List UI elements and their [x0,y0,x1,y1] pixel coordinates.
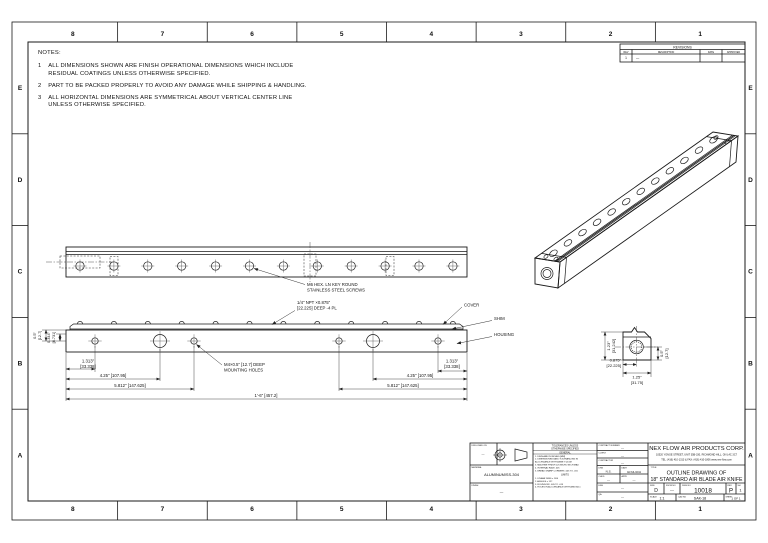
note-number: 1 [38,63,41,78]
shim-leader [452,321,492,330]
zone-row-label: E [18,85,23,92]
iso-end-face [535,258,560,288]
zone-column-label: 1 [698,31,702,38]
screw-hole [578,228,588,237]
screws-callout-line1: M6 HEX. LN KEY ROUND [307,282,358,287]
iso-top-face [535,132,738,262]
size-label: SIZE [650,485,655,487]
top-view: M6 HEX. LN KEY ROUND STAINLESS STEEL SCR… [46,242,467,293]
screw-head [315,321,320,324]
rev-col-date: DATE [708,51,715,54]
rev-col-approved: APPROVED [727,51,741,54]
iso-front-face [558,136,738,288]
screw-hole [694,146,704,155]
drawing-title-line1: OUTLINE DRAWING OF [667,471,727,477]
screw-hole [548,249,558,258]
title-label: TITLE [651,467,657,469]
screw-hole [679,156,689,165]
eng-value: — [621,487,624,491]
rev-value: P [729,489,733,495]
rev-col-rev: REV [624,51,629,54]
tolerance-line: 4. HOLES IN ACCORDANCE WITH ANSI B4.1 [535,486,581,489]
zone-row-label: B [18,361,23,368]
fscm-value: — [670,488,674,493]
used-on-label: DWG USED ON [472,445,488,447]
drawing-sheet: NOTES:1ALL DIMENSIONS SHOWN ARE FINISH O… [0,0,768,543]
screw-head [349,321,354,324]
zone-column-label: 7 [161,31,165,38]
drawn-label: DRN [599,468,604,470]
tolerance-header: OTHERWISE SPECIFIED [551,447,579,450]
scale-value: 1:1 [660,497,665,501]
revision-table: REVISIONS REV DESCRIPTION DATE APPROVED … [620,44,745,62]
screws-leader [254,269,305,285]
note-item: 3ALL HORIZONTAL DIMENSIONS ARE SYMMETRIC… [38,95,348,110]
zone-row-label: C [748,269,753,276]
dim-text: [31.75] [631,380,643,385]
dim-text: 1.25" [632,375,642,380]
zone-column-label: 3 [519,506,523,513]
note-item: 1ALL DIMENSIONS SHOWN ARE FINISH OPERATI… [38,63,348,78]
contract-value: — [621,447,624,451]
rev-row-number: 1 [625,56,627,60]
screw-head [247,321,252,324]
dim-text-overall: 1'-6" [457.2] [255,393,278,398]
rev-col-description: DESCRIPTION [658,51,675,54]
screw-head [450,321,455,324]
zone-row-label: B [748,361,753,368]
end-view: 1.23" [31.242] 0.875" [22.225] 1.25" [31… [601,326,669,385]
note-text: ALL HORIZONTAL DIMENSIONS ARE SYMMETRICA… [48,95,292,110]
client-value: — [621,454,624,458]
screw-hole [650,176,660,185]
iso-end-screw [713,135,718,140]
housing-body [66,330,467,352]
dim-text: [33.338] [80,364,96,369]
screw-head [77,321,82,324]
tolerance-line: 3. ROUNDOFF .005 TO .015 [535,484,564,486]
dim-text: 0.344" [47,331,51,343]
size-value: D [654,488,658,494]
tolerance-block: TOLERANCES UNLESSOTHERWISE SPECIFIEDGENE… [535,444,581,488]
tolerance-line: 2. ANGLES ± 1/2° [535,480,553,483]
dwg-no-value: 10018 [694,488,712,495]
material-value: ALUMINUM/SS-304 [484,472,520,477]
screw-head [213,321,218,324]
rev-label: REV [728,485,733,487]
revisions-title: REVISIONS [673,45,692,49]
zone-column-label: 8 [71,31,75,38]
dim-text: 4.25" [107.95] [100,373,127,378]
note-text: PART TO BE PACKED PROPERLY TO AVOID ANY … [48,83,306,91]
zone-column-label: 2 [609,31,613,38]
screw-head [281,321,286,324]
screw-head [179,321,184,324]
dim-text: 1.313" [446,359,459,364]
zone-column-label: 6 [250,506,254,513]
dim-text: [31.242] [611,339,616,353]
end-view-body [623,328,651,361]
front-view-holes [88,331,444,351]
dim-text: [22.225] [607,363,621,368]
npt-callout-line2: [22.225] DEEP -4 PL [297,306,337,311]
shim-label: SHIM [494,316,505,321]
dim-text: 4.25" [107.95] [407,373,434,378]
zone-column-label: 4 [430,506,434,513]
zone-column-label: 1 [698,506,702,513]
screw-head-bumps [77,321,455,324]
housing-label: HOUSING [494,332,515,337]
drawn-value: N.S. [606,470,612,474]
material-label: MATERIAL [472,466,483,469]
screw-hole [607,207,617,216]
dim-text: 5.812" [147.625] [114,383,145,388]
zone-column-label: 4 [430,31,434,38]
tolerance-line: 5. BREAK SHARP CORNERS .005 TO .015 [535,469,579,472]
notes-title: NOTES: [38,50,348,56]
zone-row-label: D [748,177,753,184]
note-number: 3 [38,95,41,110]
top-view-screw-holes [74,260,460,273]
tolerance-line: ACCORDANCE WITH ASME Y14.5M [535,461,572,464]
tolerance-general-title: GENERAL [559,451,571,454]
sheet-value: 1 OF 1 [731,497,741,501]
dim-text: [12.7] [38,331,42,341]
zone-row-label: A [748,452,753,459]
screw-head [383,321,388,324]
checked-label: CHKD [599,476,605,478]
contractor-label: CONTRACTOR [599,459,614,462]
approved-label: APPD [622,475,628,478]
dim-text: 5.812" [147.625] [387,383,418,388]
note-text: ALL DIMENSIONS SHOWN ARE FINISH OPERATIO… [48,63,293,78]
zone-row-label: D [18,177,23,184]
cad-no-label: CAD NO [678,496,686,499]
dim-text: [33.338] [444,364,460,369]
screw-head [145,321,150,324]
cover-leader [443,307,462,325]
note-item: 2PART TO BE PACKED PROPERLY TO AVOID ANY… [38,83,348,91]
date-label: DATE [622,467,628,470]
screw-hole [621,197,631,206]
company-address: 10520 YONGE STREET, UNIT 35B-330, RICHMO… [656,454,738,457]
dim-text: 0.5" [33,332,37,339]
screw-hole [665,166,675,175]
mounting-leader [197,345,223,366]
cad-no-value: SAK-18 [694,497,706,501]
zone-column-label: 2 [609,506,613,513]
zone-row-label: C [18,269,23,276]
finish-value: — [500,491,504,495]
screw-hole [636,187,646,196]
npt-leader [272,311,295,325]
tolerance-line: 4. INTERNAL RADII .005 [535,466,560,469]
qa-value: — [621,496,624,500]
zone-column-label: 8 [71,506,75,513]
zone-column-label: 3 [519,31,523,38]
zone-column-label: 5 [340,506,344,513]
zone-column-label: 7 [161,506,165,513]
screw-hole [592,218,602,227]
used-on-value: — [482,452,485,456]
tolerance-line: 1. DIMS ARE IN INCHES [MM] [535,455,565,458]
company-contact: TEL: (416) 410-1313 & FAX: (416) 410-180… [661,459,732,462]
mounting-callout-line2: MOUNTING HOLES [224,368,263,373]
iso-screw-holes [548,135,718,258]
client-label: CLIENT [599,452,607,454]
zone-row-label: E [748,85,753,92]
zone-row-label: A [18,452,23,459]
screw-hole [709,135,719,144]
note-number: 2 [38,83,41,91]
approved-value: — [633,478,636,482]
iso-slot-line [556,135,734,261]
iso-end-screw [543,254,548,259]
iso-slot-line [555,135,733,261]
cover-label: COVER [464,303,479,308]
company-name: NEX FLOW AIR PRODUCTS CORP. [649,446,744,452]
title-block: NEX FLOW AIR PRODUCTS CORP. 10520 YONGE … [470,443,745,501]
mounting-callout-line1: M4×0.5" [12.7] DEEP [224,362,265,367]
front-view: 1.313" [33.338] 4.25" [107.95] 5.812" [1… [33,300,515,401]
screw-head [111,321,116,324]
dim-text: [12.7] [664,348,669,358]
dim-text: [8.731] [52,332,56,344]
dwg-no-label: DWG NO [682,485,691,487]
isometric-view [535,132,738,288]
screw-hole [563,238,573,247]
tolerance-limits-title: LIMITS [561,473,569,476]
tolerance-line: 3. MACHINE FINISH 125 MICRO INCH MAX [535,464,579,467]
screw-head [416,321,421,324]
third-angle-projection-icon [493,448,527,462]
zone-column-label: 6 [250,31,254,38]
npt-callout-line1: 1/4" NPT ×0.875" [297,300,331,305]
notes-block: NOTES:1ALL DIMENSIONS SHOWN ARE FINISH O… [38,50,348,114]
screws-callout-line2: STAINLESS STEEL SCREWS [307,288,365,293]
contract-label: CONTRACT NUMBER [599,444,621,447]
qa-label: QA [599,493,603,496]
iso-end-screw [553,256,558,261]
date-value: 02/JUL/2011 [627,471,642,474]
housing-leader [457,337,492,344]
eng-label: ENG [599,485,604,487]
drawing-title-line2: 18" STANDARD AIR BLADE AIR KNIFE [651,477,744,483]
contractor-value: — [621,462,624,466]
checked-value: — [607,478,610,482]
rev-row-description: — [636,56,640,60]
zone-column-label: 5 [340,31,344,38]
tolerance-line: 2. DIMENSIONING AND TOLERANCING IN [535,458,578,461]
scale-label: SCALE [650,496,657,499]
iso-slot-line [558,136,736,262]
dim-text: 0.875" [610,358,622,363]
dim-text: 1.313" [82,359,95,364]
finish-label: FINISH [472,485,479,487]
sh-value: 1 [739,488,742,493]
tolerance-line: 1. LINEAR DIMS ± 1/64 [535,477,559,480]
